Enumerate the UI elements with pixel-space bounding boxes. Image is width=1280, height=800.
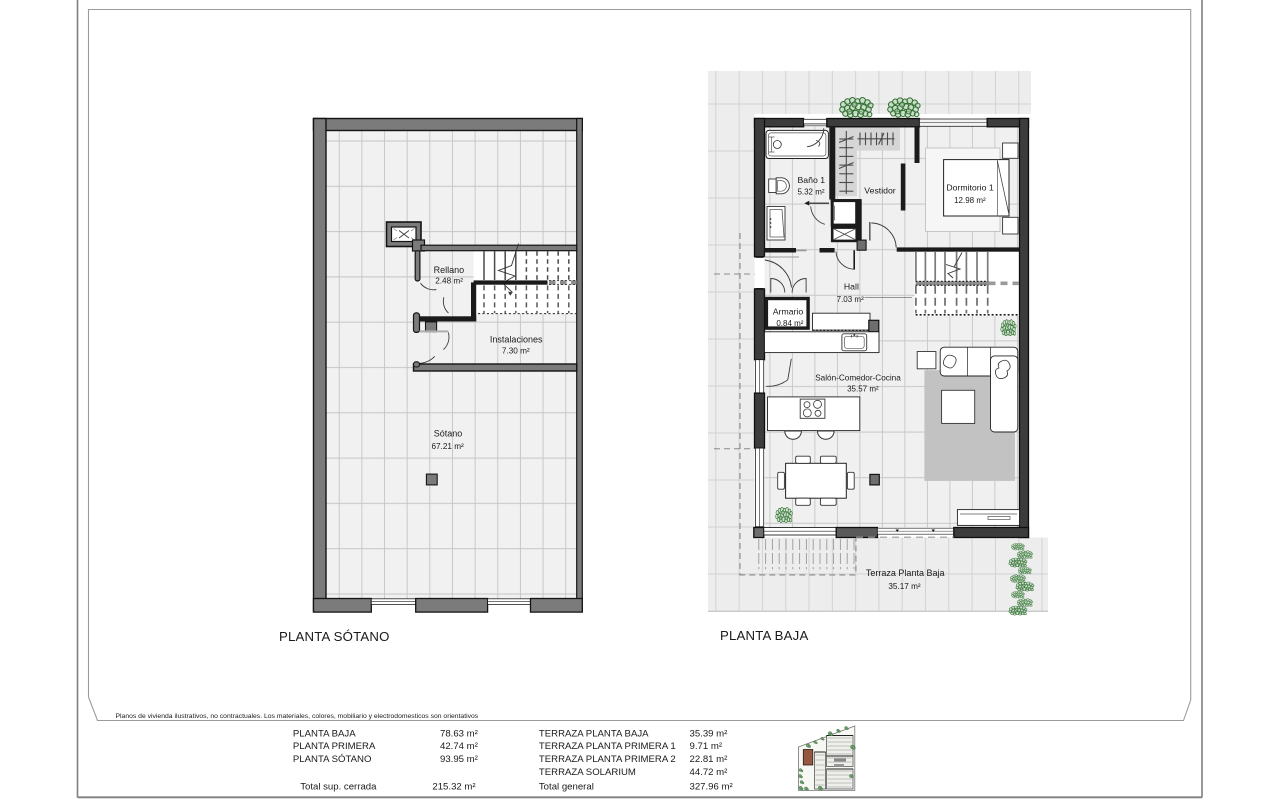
svg-text:215.32 m²: 215.32 m² <box>432 782 476 793</box>
svg-text:35.57 m²: 35.57 m² <box>847 385 879 394</box>
svg-text:Terraza Planta Baja: Terraza Planta Baja <box>866 568 945 578</box>
svg-text:7.03 m²: 7.03 m² <box>837 295 864 304</box>
svg-text:PLANTA BAJA: PLANTA BAJA <box>293 728 356 739</box>
svg-text:327.96 m²: 327.96 m² <box>690 782 734 793</box>
svg-text:35.17 m²: 35.17 m² <box>888 582 921 591</box>
svg-text:12.98 m²: 12.98 m² <box>954 196 986 205</box>
svg-text:Hall: Hall <box>844 281 859 291</box>
svg-text:Planos de vivienda ilustrativo: Planos de vivienda ilustrativos, no cont… <box>116 713 479 720</box>
svg-text:0.84 m²: 0.84 m² <box>776 319 803 328</box>
svg-text:TERRAZA PLANTA BAJA: TERRAZA PLANTA BAJA <box>539 728 649 739</box>
svg-text:9.71 m²: 9.71 m² <box>690 741 723 752</box>
svg-text:Baño 1: Baño 1 <box>798 175 826 185</box>
svg-text:PLANTA SÓTANO: PLANTA SÓTANO <box>279 629 390 644</box>
svg-text:78.63 m²: 78.63 m² <box>440 728 479 739</box>
svg-text:TERRAZA PLANTA PRIMERA 2: TERRAZA PLANTA PRIMERA 2 <box>539 754 676 765</box>
svg-text:TERRAZA SOLARIUM: TERRAZA SOLARIUM <box>539 767 636 778</box>
svg-text:PLANTA BAJA: PLANTA BAJA <box>720 628 808 643</box>
svg-text:93.95 m²: 93.95 m² <box>440 754 479 765</box>
svg-text:Armario: Armario <box>773 306 804 316</box>
svg-text:Instalaciones: Instalaciones <box>490 334 543 344</box>
svg-text:Sótano: Sótano <box>434 429 463 439</box>
svg-text:42.74 m²: 42.74 m² <box>440 741 479 752</box>
svg-text:Total general: Total general <box>539 782 594 793</box>
svg-text:Dormitorio 1: Dormitorio 1 <box>946 182 993 192</box>
svg-text:67.21 m²: 67.21 m² <box>431 442 464 451</box>
svg-text:7.30 m²: 7.30 m² <box>502 347 530 356</box>
svg-text:22.81 m²: 22.81 m² <box>690 754 729 765</box>
svg-text:Total sup. cerrada: Total sup. cerrada <box>300 782 377 793</box>
svg-text:Rellano: Rellano <box>434 265 465 275</box>
svg-text:44.72 m²: 44.72 m² <box>690 767 729 778</box>
svg-text:Salón-Comedor-Cocina: Salón-Comedor-Cocina <box>815 373 901 382</box>
svg-text:2.48 m²: 2.48 m² <box>435 276 463 285</box>
svg-text:PLANTA PRIMERA: PLANTA PRIMERA <box>293 741 376 752</box>
svg-text:5.32 m²: 5.32 m² <box>797 188 824 197</box>
svg-text:TERRAZA PLANTA PRIMERA 1: TERRAZA PLANTA PRIMERA 1 <box>539 741 676 752</box>
svg-text:35.39 m²: 35.39 m² <box>690 728 729 739</box>
svg-text:PLANTA SÓTANO: PLANTA SÓTANO <box>293 754 372 765</box>
svg-text:Vestidor: Vestidor <box>864 185 895 195</box>
